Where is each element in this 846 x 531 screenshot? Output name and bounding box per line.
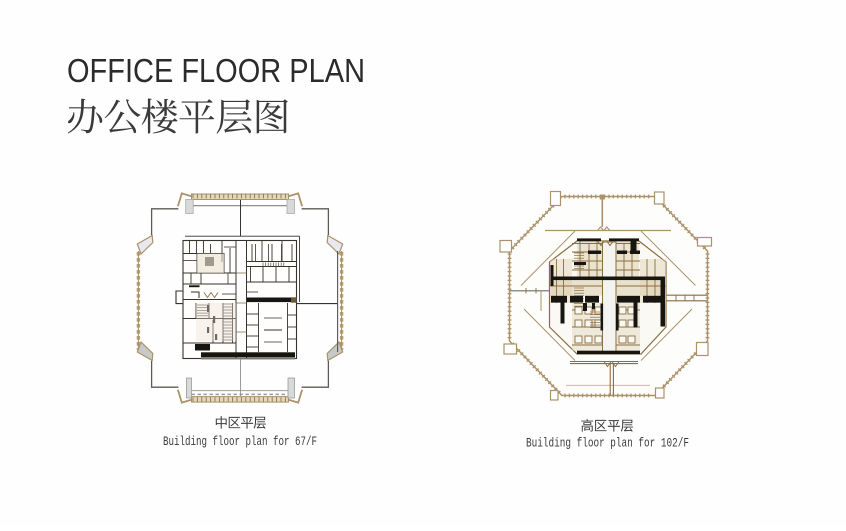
svg-text:Building floor plan for 102/F: Building floor plan for 102/F xyxy=(526,435,689,450)
svg-text:Building floor plan for 67/F: Building floor plan for 67/F xyxy=(163,434,317,449)
svg-text:OFFICE FLOOR PLAN: OFFICE FLOOR PLAN xyxy=(67,52,365,89)
